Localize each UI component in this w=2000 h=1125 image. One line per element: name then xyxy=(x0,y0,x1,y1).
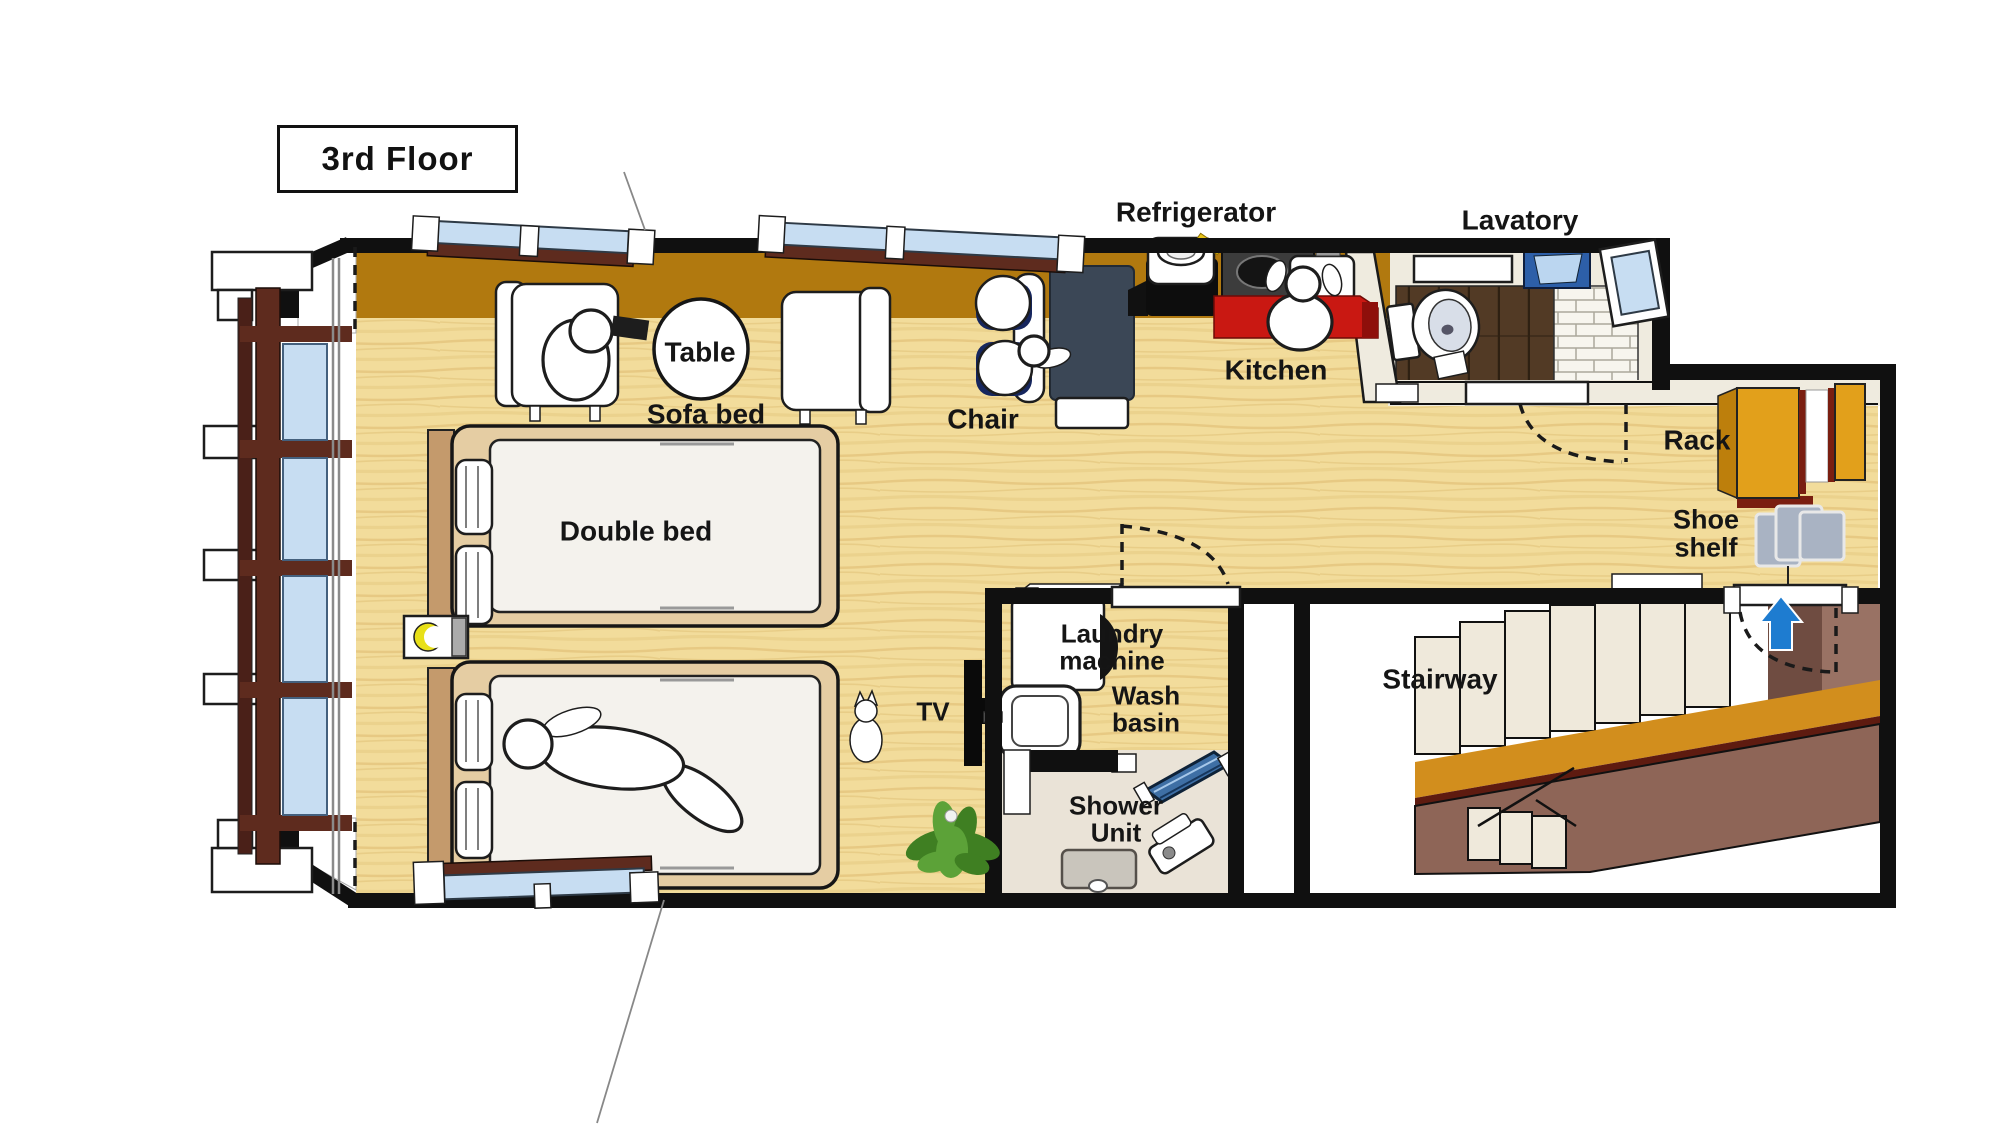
entrance-door xyxy=(1734,585,1846,605)
void-strip xyxy=(1244,604,1294,893)
floor-plan-page: 3rd Floor RefrigeratorLavatoryTableSofa … xyxy=(0,0,2000,1125)
bed-1 xyxy=(428,426,838,626)
lavatory-window xyxy=(1600,240,1669,327)
lavatory-shelf xyxy=(1414,256,1512,282)
table-icon xyxy=(654,299,748,399)
laundry-door xyxy=(1112,587,1240,607)
chair-1-icon xyxy=(976,276,1030,330)
stair-lower-steps xyxy=(1468,808,1566,868)
leader-line-top xyxy=(624,172,645,230)
nightstand-icon xyxy=(404,616,468,658)
stairway-room xyxy=(1310,590,1880,893)
floor-title: 3rd Floor xyxy=(321,140,473,178)
person-at-desk-icon xyxy=(1019,336,1049,366)
sofa-bed-right-icon xyxy=(782,288,890,424)
basin-step xyxy=(1004,750,1030,814)
bay-window-left xyxy=(204,252,352,894)
lavatory-door xyxy=(1466,382,1588,404)
threshold xyxy=(1612,574,1702,590)
leader-line-bottom xyxy=(597,900,664,1123)
bench-icon xyxy=(1056,398,1128,428)
lavatory-sink-icon xyxy=(1524,250,1590,288)
partition-door xyxy=(1376,384,1418,402)
desk-icon xyxy=(1050,266,1134,400)
floor-title-box: 3rd Floor xyxy=(277,125,518,193)
